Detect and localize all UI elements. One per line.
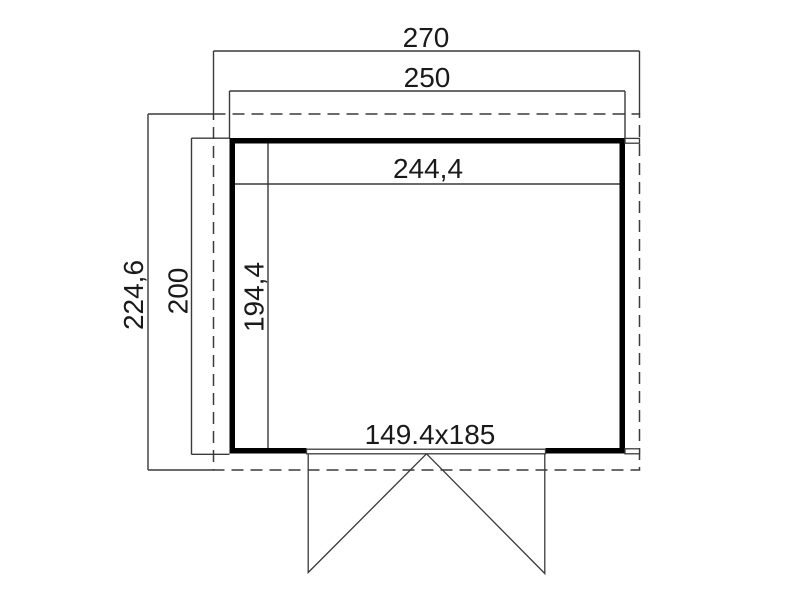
label-door-size: 149.4x185 <box>365 419 496 450</box>
drawing-sheet: 270 250 244,4 224,6 200 194,4 149.4x185 <box>0 0 800 600</box>
label-body-depth: 200 <box>163 268 194 315</box>
wall-top <box>230 138 626 144</box>
eave-piece-top-right <box>625 138 640 143</box>
door-leaf-right <box>427 454 545 574</box>
walls <box>230 138 626 454</box>
wall-left <box>230 138 236 454</box>
door <box>307 449 546 573</box>
eave-corner-pieces <box>625 138 640 453</box>
wall-bottom-left <box>230 448 307 454</box>
wall-right <box>620 138 626 454</box>
label-inner-depth: 194,4 <box>239 262 270 332</box>
door-leaf-left <box>308 454 426 573</box>
floor-plan-svg: 270 250 244,4 224,6 200 194,4 149.4x185 <box>0 0 800 600</box>
dimension-labels: 270 250 244,4 224,6 200 194,4 149.4x185 <box>118 22 495 450</box>
eave-piece-bottom-right <box>625 449 640 454</box>
label-inner-width: 244,4 <box>393 153 463 184</box>
wall-bottom-right <box>546 448 626 454</box>
label-body-width: 250 <box>404 62 451 93</box>
label-roof-depth: 224,6 <box>118 260 149 330</box>
label-roof-width: 270 <box>403 22 450 53</box>
